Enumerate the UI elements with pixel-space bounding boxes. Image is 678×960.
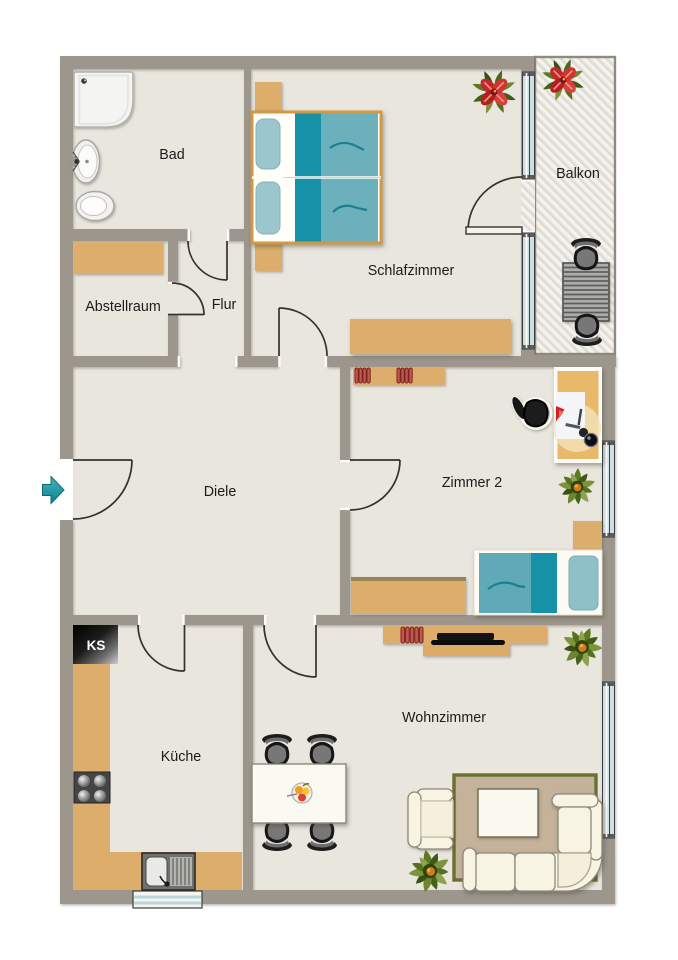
svg-text:Bad: Bad: [159, 147, 184, 163]
svg-text:Flur: Flur: [212, 297, 237, 313]
svg-text:Schlafzimmer: Schlafzimmer: [368, 263, 455, 279]
svg-text:KS: KS: [87, 638, 106, 653]
svg-text:Balkon: Balkon: [556, 166, 600, 182]
svg-text:Diele: Diele: [204, 484, 237, 500]
svg-text:Küche: Küche: [161, 749, 202, 765]
svg-text:Zimmer 2: Zimmer 2: [442, 475, 502, 491]
svg-text:Wohnzimmer: Wohnzimmer: [402, 710, 486, 726]
svg-text:Abstellraum: Abstellraum: [85, 299, 161, 315]
